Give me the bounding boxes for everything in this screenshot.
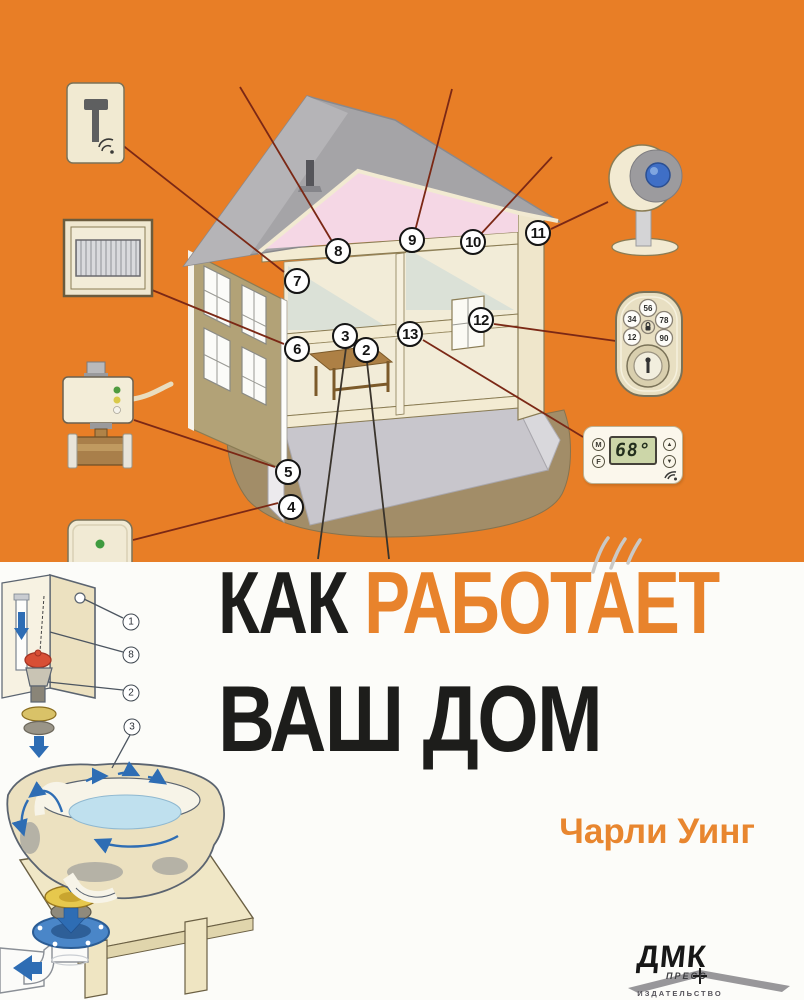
bowl-water [69, 795, 181, 829]
toilet-cutaway-diagram [0, 575, 253, 998]
smart-switch-icon [67, 83, 124, 163]
lock-key: 90 [660, 334, 669, 343]
callout-9: 9 [399, 227, 425, 253]
book-title-line1: КАК РАБОТАЕТ [218, 559, 719, 647]
flush-valve-seat [26, 668, 52, 686]
callout-10: 10 [460, 229, 486, 255]
stud-wall-lower [396, 338, 404, 415]
air-filter-icon [64, 220, 152, 296]
toilet-callout-8: 8 [123, 647, 140, 664]
tank-bolt [75, 593, 85, 603]
facade-corner-trim [188, 250, 194, 431]
cut-edge-strip [281, 298, 287, 470]
author-name: Чарли Уинг [540, 812, 755, 852]
callout-6: 6 [284, 336, 310, 362]
lock-key: 12 [628, 333, 637, 342]
smart-lock-icon: 56 34 78 12 90 [616, 292, 682, 396]
publisher-press: ПРЕСС [666, 971, 707, 981]
callout-12: 12 [468, 307, 494, 333]
stud-wall-upper [396, 253, 404, 333]
callout-4: 4 [278, 494, 304, 520]
thermostat-up-button: ▲ [663, 438, 676, 451]
title-word-rabotaet: РАБОТАЕТ [364, 553, 718, 652]
toilet-tank [2, 575, 95, 758]
security-camera-icon [609, 145, 682, 256]
callout-8: 8 [325, 238, 351, 264]
lock-key: 34 [628, 315, 637, 324]
publisher-subtitle: ИЗДАТЕЛЬСТВО [622, 989, 738, 998]
callout-3: 3 [332, 323, 358, 349]
thermostat-fan-button: F [592, 455, 605, 468]
callout-13: 13 [397, 321, 423, 347]
toilet-callout-2: 2 [123, 685, 140, 702]
lock-key: 56 [644, 304, 653, 313]
leak-sensor-icon [68, 520, 132, 574]
callout-5: 5 [275, 459, 301, 485]
book-title-line2: ВАШ ДОМ [218, 672, 601, 766]
house-cutaway-diagram [184, 96, 571, 537]
water-shutoff-valve-icon [63, 362, 171, 468]
book-cover: 56 34 78 12 90 [0, 0, 804, 1000]
thermostat-display: 68° [609, 436, 657, 465]
toilet-callout-1: 1 [123, 614, 140, 631]
thermostat-mode-button: M [592, 438, 605, 451]
wifi-icon [663, 467, 679, 481]
toilet-callout-3: 3 [124, 719, 141, 736]
thermostat-icon: M F 68° ▲ ▼ [583, 426, 683, 484]
callout-11: 11 [525, 220, 551, 246]
title-word-kak: КАК [218, 553, 347, 652]
publisher-name: ДМК [636, 941, 709, 972]
lock-key: 78 [660, 316, 669, 325]
callout-7: 7 [284, 268, 310, 294]
